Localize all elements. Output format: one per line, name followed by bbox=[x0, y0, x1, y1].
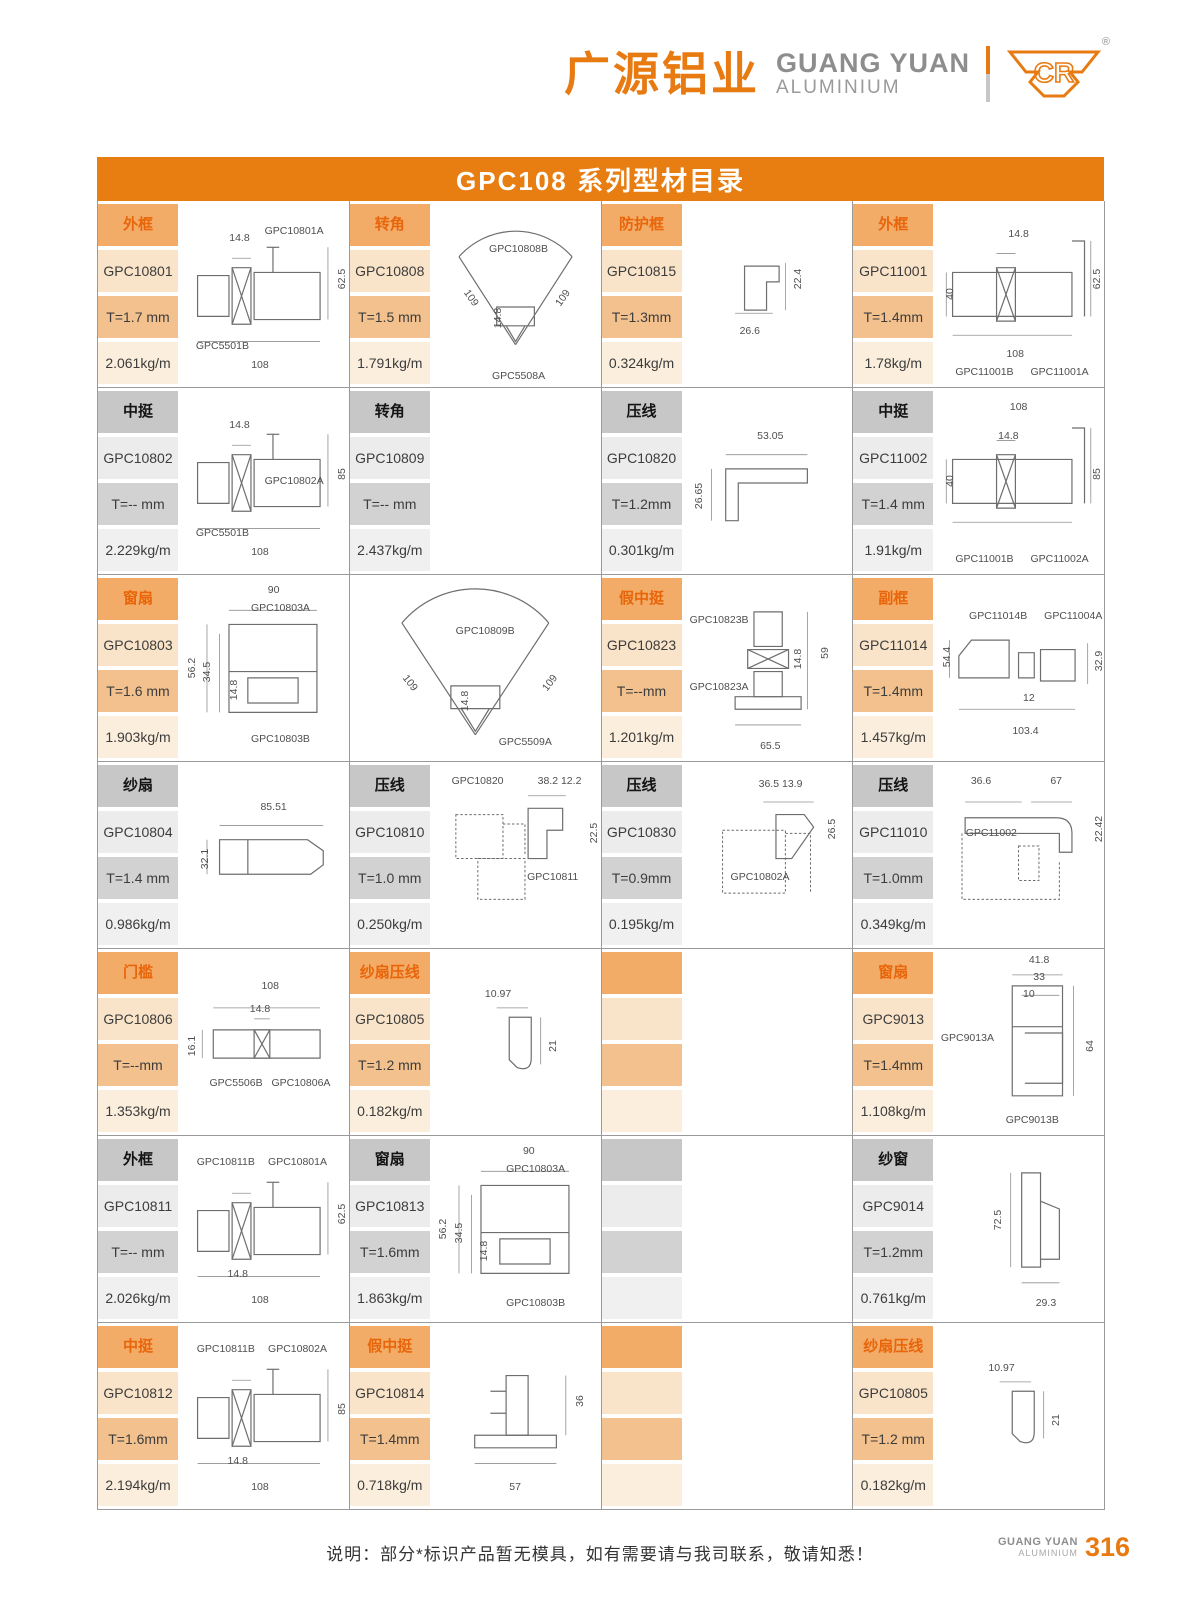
dimension-label: 10 bbox=[1023, 988, 1035, 1000]
label-column: 外框GPC10801T=1.7 mm2.061kg/m bbox=[98, 201, 178, 387]
weight-value: 2.229kg/m bbox=[98, 529, 178, 571]
thickness-value: T=1.2 mm bbox=[350, 1044, 430, 1086]
dimension-label: 38.2 12.2 bbox=[538, 775, 582, 787]
dimension-label: GPC10802A bbox=[731, 871, 790, 883]
registered-mark: ® bbox=[1102, 36, 1110, 48]
logo-chinese-name: 广源铝业 bbox=[564, 51, 760, 97]
label-column: 中挺GPC11002T=1.4 mm1.91kg/m bbox=[853, 388, 933, 574]
profile-drawing: 36.5 13.926.5GPC10802A bbox=[682, 762, 853, 948]
label-column: 转角GPC10808T=1.5 mm1.791kg/m bbox=[350, 201, 430, 387]
thickness-value: T=1.4mm bbox=[853, 296, 933, 338]
thickness-value: T=1.4mm bbox=[350, 1418, 430, 1460]
dimension-label: GPC10802A bbox=[265, 475, 324, 487]
product-code: GPC10815 bbox=[602, 250, 682, 292]
product-code: GPC10813 bbox=[350, 1185, 430, 1227]
category-label: 假中挺 bbox=[350, 1326, 430, 1368]
dimension-label: 14.8 bbox=[459, 691, 471, 711]
profile-drawing: 85.5132.1 bbox=[178, 762, 349, 948]
dimension-label: GPC10823B bbox=[690, 614, 749, 626]
dimension-label: 36 bbox=[574, 1395, 586, 1407]
profile-drawing: 10814.84085GPC11001BGPC11002A bbox=[933, 388, 1104, 574]
category-label: 外框 bbox=[98, 1139, 178, 1181]
weight-value: 1.78kg/m bbox=[853, 342, 933, 384]
product-code: GPC11010 bbox=[853, 811, 933, 853]
dimension-label: 34.5 bbox=[201, 662, 213, 682]
product-code: GPC11001 bbox=[853, 250, 933, 292]
cr-logo-icon: CR ® bbox=[1006, 42, 1102, 106]
label-column bbox=[602, 1136, 682, 1322]
dimension-label: 36.6 bbox=[971, 775, 991, 787]
page-number: 316 bbox=[1085, 1534, 1130, 1561]
category-label: 中挺 bbox=[98, 1326, 178, 1368]
label-column: 窗扇GPC10803T=1.6 mm1.903kg/m bbox=[98, 575, 178, 761]
dimension-label: GPC11001B bbox=[955, 366, 1013, 378]
label-column: 纱扇压线GPC10805T=1.2 mm0.182kg/m bbox=[853, 1323, 933, 1509]
category-label: 纱扇 bbox=[98, 765, 178, 807]
profile-card-GPC10805: 纱扇压线GPC10805T=1.2 mm0.182kg/m10.9721 bbox=[350, 949, 602, 1135]
profile-card-GPC9013: 窗扇GPC9013T=1.4mm1.108kg/m41.83310GPC9013… bbox=[853, 949, 1105, 1135]
dimension-label: 40 bbox=[944, 475, 956, 487]
category-label: 外框 bbox=[98, 204, 178, 246]
profile-card-GPC10806: 门槛GPC10806T=--mm1.353kg/m10814.816.1GPC5… bbox=[98, 949, 350, 1135]
thickness-value: T=0.9mm bbox=[602, 857, 682, 899]
thickness-value: T=--mm bbox=[602, 670, 682, 712]
thickness-value: T=1.2mm bbox=[853, 1231, 933, 1273]
product-code: GPC10805 bbox=[350, 998, 430, 1040]
category-label bbox=[602, 1139, 682, 1181]
product-code: GPC10808 bbox=[350, 250, 430, 292]
label-column: 压线GPC10820T=1.2mm0.301kg/m bbox=[602, 388, 682, 574]
profile-drawing: 53.0526.65 bbox=[682, 388, 853, 574]
weight-value: 1.903kg/m bbox=[98, 716, 178, 758]
dimension-label: 16.1 bbox=[186, 1036, 198, 1056]
dimension-label: 108 bbox=[251, 1294, 269, 1306]
profile-drawing: 10.9721 bbox=[430, 949, 601, 1135]
dimension-label: 90 bbox=[268, 584, 280, 596]
category-label: 防护框 bbox=[602, 204, 682, 246]
dimension-label: GPC5506B bbox=[209, 1077, 262, 1089]
profile-card-GPC11010: 压线GPC11010T=1.0mm0.349kg/m36.667GPC11002… bbox=[853, 762, 1105, 948]
profile-card-GPC11001: 外框GPC11001T=1.4mm1.78kg/m14.84062.5108GP… bbox=[853, 201, 1105, 387]
product-code: GPC11002 bbox=[853, 437, 933, 479]
profile-card-GPC10804: 纱扇GPC10804T=1.4 mm0.986kg/m85.5132.1 bbox=[98, 762, 350, 948]
dimension-label: 108 bbox=[251, 1481, 269, 1493]
dimension-label: 85 bbox=[336, 468, 348, 480]
profile-card-GPC10815: 防护框GPC10815T=1.3mm0.324kg/m22.426.6 bbox=[602, 201, 854, 387]
category-label: 压线 bbox=[602, 391, 682, 433]
dimension-label: GPC10802A bbox=[268, 1343, 327, 1355]
footer-brand-sub: ALUMINIUM bbox=[1018, 1548, 1078, 1559]
dimension-label: GPC11014B bbox=[969, 610, 1027, 622]
dimension-label: 32.1 bbox=[199, 849, 211, 869]
dimension-label: GPC10803B bbox=[506, 1297, 565, 1309]
dimension-label: GPC5501B bbox=[196, 340, 249, 352]
weight-value bbox=[602, 1090, 682, 1132]
dimension-label: 62.5 bbox=[336, 269, 348, 289]
thickness-value: T=-- mm bbox=[350, 483, 430, 525]
dimension-label: GPC11001A bbox=[1031, 366, 1089, 378]
svg-text:CR: CR bbox=[1034, 57, 1074, 88]
dimension-label: 26.6 bbox=[740, 325, 760, 337]
catalog-row: 门槛GPC10806T=--mm1.353kg/m10814.816.1GPC5… bbox=[98, 949, 1105, 1136]
label-column: 中挺GPC10802T=-- mm2.229kg/m bbox=[98, 388, 178, 574]
dimension-label: 14.8 bbox=[478, 1241, 490, 1261]
dimension-label: GPC10806A bbox=[271, 1077, 330, 1089]
thickness-value: T=1.4mm bbox=[853, 1044, 933, 1086]
product-code: GPC9013 bbox=[853, 998, 933, 1040]
profile-card-empty bbox=[602, 1136, 854, 1322]
thickness-value: T=1.0 mm bbox=[350, 857, 430, 899]
category-label: 窗扇 bbox=[350, 1139, 430, 1181]
product-code: GPC10802 bbox=[98, 437, 178, 479]
profile-card-GPC10810: 压线GPC10810T=1.0 mm0.250kg/mGPC1082038.2 … bbox=[350, 762, 602, 948]
dimension-label: GPC9013B bbox=[1006, 1114, 1059, 1126]
product-code bbox=[602, 1185, 682, 1227]
thickness-value bbox=[602, 1231, 682, 1273]
weight-value: 1.863kg/m bbox=[350, 1277, 430, 1319]
profile-card-GPC9014: 纱窗GPC9014T=1.2mm0.761kg/m72.529.3 bbox=[853, 1136, 1105, 1322]
weight-value: 0.718kg/m bbox=[350, 1464, 430, 1506]
weight-value: 1.91kg/m bbox=[853, 529, 933, 571]
weight-value: 0.349kg/m bbox=[853, 903, 933, 945]
dimension-label: 22.42 bbox=[1093, 816, 1105, 842]
dimension-label: 64 bbox=[1084, 1040, 1096, 1052]
profile-drawing: GPC1082038.2 12.2GPC1081122.5 bbox=[430, 762, 601, 948]
thickness-value: T=-- mm bbox=[98, 1231, 178, 1273]
dimension-label: 108 bbox=[251, 359, 269, 371]
dimension-label: 108 bbox=[1006, 348, 1024, 360]
category-label: 纱扇压线 bbox=[853, 1326, 933, 1368]
weight-value: 2.437kg/m bbox=[350, 529, 430, 571]
weight-value: 0.761kg/m bbox=[853, 1277, 933, 1319]
dimension-label: 40 bbox=[944, 288, 956, 300]
product-code: GPC10804 bbox=[98, 811, 178, 853]
dimension-label: GPC10808B bbox=[489, 243, 548, 255]
product-code bbox=[602, 998, 682, 1040]
catalog-row: 中挺GPC10812T=1.6mm2.194kg/mGPC10811BGPC10… bbox=[98, 1323, 1105, 1510]
label-column: 假中挺GPC10823T=--mm1.201kg/m bbox=[602, 575, 682, 761]
logo-english-sub: ALUMINIUM bbox=[776, 77, 970, 99]
dimension-label: 85 bbox=[336, 1403, 348, 1415]
product-code: GPC10812 bbox=[98, 1372, 178, 1414]
profile-card-GPC10820: 压线GPC10820T=1.2mm0.301kg/m53.0526.65 bbox=[602, 388, 854, 574]
dimension-label: 67 bbox=[1050, 775, 1062, 787]
profile-drawing: 22.426.6 bbox=[682, 201, 853, 387]
dimension-label: GPC9013A bbox=[941, 1032, 994, 1044]
thickness-value: T=1.2 mm bbox=[853, 1418, 933, 1460]
dimension-label: 90 bbox=[523, 1145, 535, 1157]
profile-drawing: 41.83310GPC9013A64GPC9013B bbox=[933, 949, 1104, 1135]
label-column: 防护框GPC10815T=1.3mm0.324kg/m bbox=[602, 201, 682, 387]
dimension-label: 14.8 bbox=[229, 232, 249, 244]
profile-card-GPC10813: 窗扇GPC10813T=1.6mm1.863kg/m90GPC10803A56.… bbox=[350, 1136, 602, 1322]
thickness-value: T=1.4 mm bbox=[853, 483, 933, 525]
weight-value: 0.324kg/m bbox=[602, 342, 682, 384]
profile-card-empty bbox=[602, 949, 854, 1135]
product-code: GPC10806 bbox=[98, 998, 178, 1040]
profile-card-GPC10823: 假中挺GPC10823T=--mm1.201kg/mGPC10823B14.85… bbox=[602, 575, 854, 761]
profile-card-GPC10801: 外框GPC10801T=1.7 mm2.061kg/m14.8GPC10801A… bbox=[98, 201, 350, 387]
dimension-label: 85 bbox=[1091, 468, 1103, 480]
category-label: 假中挺 bbox=[602, 578, 682, 620]
weight-value: 1.353kg/m bbox=[98, 1090, 178, 1132]
thickness-value: T=1.3mm bbox=[602, 296, 682, 338]
dimension-label: 72.5 bbox=[992, 1209, 1004, 1229]
profile-card-GPC10811: 外框GPC10811T=-- mm2.026kg/mGPC10811BGPC10… bbox=[98, 1136, 350, 1322]
profile-drawing bbox=[430, 388, 601, 574]
weight-value bbox=[602, 1277, 682, 1319]
profile-card-GPC11002: 中挺GPC11002T=1.4 mm1.91kg/m10814.84085GPC… bbox=[853, 388, 1105, 574]
category-label: 副框 bbox=[853, 578, 933, 620]
category-label: 窗扇 bbox=[98, 578, 178, 620]
label-column: 副框GPC11014T=1.4mm1.457kg/m bbox=[853, 575, 933, 761]
dimension-label: 108 bbox=[251, 546, 269, 558]
dimension-label: 34.5 bbox=[453, 1223, 465, 1243]
dimension-label: GPC10811 bbox=[527, 871, 578, 883]
company-logo: 广源铝业 GUANG YUAN ALUMINIUM CR ® bbox=[564, 42, 1102, 106]
dimension-label: 65.5 bbox=[760, 740, 780, 752]
category-label: 纱扇压线 bbox=[350, 952, 430, 994]
profile-drawing: 10.9721 bbox=[933, 1323, 1104, 1509]
product-code: GPC10810 bbox=[350, 811, 430, 853]
profile-card-GPC10812: 中挺GPC10812T=1.6mm2.194kg/mGPC10811BGPC10… bbox=[98, 1323, 350, 1509]
dimension-label: 57 bbox=[509, 1481, 521, 1493]
label-column bbox=[602, 1323, 682, 1509]
label-column: 压线GPC10830T=0.9mm0.195kg/m bbox=[602, 762, 682, 948]
dimension-label: 14.8 bbox=[228, 680, 240, 700]
dimension-label: GPC10811B bbox=[197, 1343, 255, 1355]
dimension-label: 36.5 13.9 bbox=[759, 778, 803, 790]
category-label: 中挺 bbox=[98, 391, 178, 433]
weight-value: 2.194kg/m bbox=[98, 1464, 178, 1506]
dimension-label: 59 bbox=[819, 647, 831, 659]
logo-english-name: GUANG YUAN bbox=[776, 49, 970, 77]
logo-divider bbox=[986, 46, 990, 102]
dimension-label: 56.2 bbox=[437, 1219, 449, 1239]
dimension-label: 62.5 bbox=[1091, 269, 1103, 289]
dimension-label: 108 bbox=[261, 980, 279, 992]
profile-drawing: GPC11014BGPC11004A54.41232.9103.4 bbox=[933, 575, 1104, 761]
dimension-label: GPC10823A bbox=[690, 681, 749, 693]
weight-value: 1.791kg/m bbox=[350, 342, 430, 384]
dimension-label: 54.4 bbox=[941, 647, 953, 667]
footer-brand: GUANG YUAN ALUMINIUM 316 bbox=[998, 1534, 1130, 1561]
thickness-value: T=-- mm bbox=[98, 483, 178, 525]
dimension-label: GPC5501B bbox=[196, 527, 249, 539]
weight-value: 2.061kg/m bbox=[98, 342, 178, 384]
product-code: GPC10801 bbox=[98, 250, 178, 292]
product-code: GPC10823 bbox=[602, 624, 682, 666]
product-code: GPC10811 bbox=[98, 1185, 178, 1227]
label-column: 压线GPC10810T=1.0 mm0.250kg/m bbox=[350, 762, 430, 948]
profile-card-GPC10802: 中挺GPC10802T=-- mm2.229kg/m14.8GPC10802A8… bbox=[98, 388, 350, 574]
catalog-row: 窗扇GPC10803T=1.6 mm1.903kg/m90GPC10803A56… bbox=[98, 575, 1105, 762]
dimension-label: 21 bbox=[547, 1040, 559, 1052]
product-code: GPC10805 bbox=[853, 1372, 933, 1414]
dimension-label: GPC11002 bbox=[966, 827, 1017, 839]
profile-drawing: 36.667GPC1100222.42 bbox=[933, 762, 1104, 948]
dimension-label: GPC10820 bbox=[452, 775, 504, 787]
label-column: 压线GPC11010T=1.0mm0.349kg/m bbox=[853, 762, 933, 948]
dimension-label: 10.97 bbox=[988, 1362, 1014, 1374]
product-code bbox=[602, 1372, 682, 1414]
profile-drawing bbox=[682, 1136, 853, 1322]
dimension-label: 14.8 bbox=[250, 1003, 270, 1015]
category-label: 窗扇 bbox=[853, 952, 933, 994]
category-label: 外框 bbox=[853, 204, 933, 246]
product-code: GPC11014 bbox=[853, 624, 933, 666]
category-label: 门槛 bbox=[98, 952, 178, 994]
label-column: 纱窗GPC9014T=1.2mm0.761kg/m bbox=[853, 1136, 933, 1322]
category-label: 转角 bbox=[350, 391, 430, 433]
profile-drawing: 14.8GPC10801A62.5GPC5501B108 bbox=[178, 201, 349, 387]
dimension-label: 14.8 bbox=[998, 430, 1018, 442]
category-label bbox=[602, 1326, 682, 1368]
category-label bbox=[602, 952, 682, 994]
weight-value: 0.250kg/m bbox=[350, 903, 430, 945]
catalog-row: 外框GPC10811T=-- mm2.026kg/mGPC10811BGPC10… bbox=[98, 1136, 1105, 1323]
dimension-label: 33 bbox=[1033, 971, 1045, 983]
dimension-label: 103.4 bbox=[1012, 725, 1038, 737]
weight-value: 0.301kg/m bbox=[602, 529, 682, 571]
dimension-label: 14.8 bbox=[1008, 228, 1028, 240]
thickness-value: T=1.2mm bbox=[602, 483, 682, 525]
thickness-value: T=1.5 mm bbox=[350, 296, 430, 338]
dimension-label: 56.2 bbox=[186, 658, 198, 678]
dimension-label: GPC10803A bbox=[251, 602, 310, 614]
dimension-label: GPC5508A bbox=[492, 370, 545, 382]
thickness-value: T=1.6mm bbox=[350, 1231, 430, 1273]
dimension-label: GPC11001B bbox=[955, 553, 1013, 565]
category-label: 转角 bbox=[350, 204, 430, 246]
label-column: 外框GPC11001T=1.4mm1.78kg/m bbox=[853, 201, 933, 387]
profile-card-GPC10803: 窗扇GPC10803T=1.6 mm1.903kg/m90GPC10803A56… bbox=[98, 575, 350, 761]
catalog-grid: 外框GPC10801T=1.7 mm2.061kg/m14.8GPC10801A… bbox=[97, 201, 1105, 1510]
thickness-value: T=--mm bbox=[98, 1044, 178, 1086]
weight-value: 0.182kg/m bbox=[350, 1090, 430, 1132]
category-label: 压线 bbox=[602, 765, 682, 807]
label-column: 纱扇压线GPC10805T=1.2 mm0.182kg/m bbox=[350, 949, 430, 1135]
thickness-value: T=1.4 mm bbox=[98, 857, 178, 899]
dimension-label: GPC10811B bbox=[197, 1156, 255, 1168]
profile-drawing bbox=[682, 1323, 853, 1509]
profile-card-empty: GPC10809B10914.8109GPC5509A bbox=[350, 575, 602, 761]
dimension-label: 108 bbox=[1010, 401, 1028, 413]
dimension-label: 14.8 bbox=[229, 419, 249, 431]
label-column: 窗扇GPC9013T=1.4mm1.108kg/m bbox=[853, 949, 933, 1135]
profile-drawing bbox=[682, 949, 853, 1135]
profile-drawing: 14.84062.5108GPC11001BGPC11001A bbox=[933, 201, 1104, 387]
weight-value: 0.195kg/m bbox=[602, 903, 682, 945]
dimension-label: GPC5509A bbox=[499, 736, 552, 748]
dimension-label: 14.8 bbox=[228, 1268, 248, 1280]
product-code: GPC10809 bbox=[350, 437, 430, 479]
dimension-label: 85.51 bbox=[260, 801, 286, 813]
dimension-label: 22.4 bbox=[792, 269, 804, 289]
label-column: 转角GPC10809T=-- mm2.437kg/m bbox=[350, 388, 430, 574]
profile-card-GPC10808: 转角GPC10808T=1.5 mm1.791kg/mGPC10808B1091… bbox=[350, 201, 602, 387]
profile-drawing: GPC10809B10914.8109GPC5509A bbox=[350, 575, 601, 761]
profile-drawing: 14.8GPC10802A85GPC5501B108 bbox=[178, 388, 349, 574]
weight-value: 0.986kg/m bbox=[98, 903, 178, 945]
product-code: GPC9014 bbox=[853, 1185, 933, 1227]
profile-card-empty bbox=[602, 1323, 854, 1509]
dimension-label: 26.65 bbox=[693, 483, 705, 509]
thickness-value: T=1.6 mm bbox=[98, 670, 178, 712]
label-column: 中挺GPC10812T=1.6mm2.194kg/m bbox=[98, 1323, 178, 1509]
dimension-label: 62.5 bbox=[336, 1204, 348, 1224]
category-label: 中挺 bbox=[853, 391, 933, 433]
profile-drawing: 72.529.3 bbox=[933, 1136, 1104, 1322]
dimension-label: 14.8 bbox=[792, 648, 804, 668]
profile-drawing: GPC10823B14.859GPC10823A65.5 bbox=[682, 575, 853, 761]
profile-drawing: GPC10811BGPC10801A62.514.8108 bbox=[178, 1136, 349, 1322]
dimension-label: 10.97 bbox=[485, 988, 511, 1000]
thickness-value: T=1.6mm bbox=[98, 1418, 178, 1460]
dimension-label: 26.5 bbox=[826, 819, 838, 839]
profile-drawing: GPC10811BGPC10802A8514.8108 bbox=[178, 1323, 349, 1509]
weight-value: 0.182kg/m bbox=[853, 1464, 933, 1506]
product-code: GPC10803 bbox=[98, 624, 178, 666]
category-label: 压线 bbox=[350, 765, 430, 807]
profile-drawing: 90GPC10803A56.234.514.8GPC10803B bbox=[178, 575, 349, 761]
label-column bbox=[602, 949, 682, 1135]
weight-value: 1.201kg/m bbox=[602, 716, 682, 758]
dimension-label: 29.3 bbox=[1036, 1297, 1056, 1309]
dimension-label: 53.05 bbox=[757, 430, 783, 442]
profile-card-GPC11014: 副框GPC11014T=1.4mm1.457kg/mGPC11014BGPC11… bbox=[853, 575, 1105, 761]
weight-value: 2.026kg/m bbox=[98, 1277, 178, 1319]
dimension-label: 41.8 bbox=[1029, 954, 1049, 966]
dimension-label: 12 bbox=[1023, 692, 1035, 704]
catalog-row: 中挺GPC10802T=-- mm2.229kg/m14.8GPC10802A8… bbox=[98, 388, 1105, 575]
product-code: GPC10830 bbox=[602, 811, 682, 853]
profile-drawing: 10814.816.1GPC5506BGPC10806A bbox=[178, 949, 349, 1135]
weight-value: 1.108kg/m bbox=[853, 1090, 933, 1132]
profile-card-GPC10830: 压线GPC10830T=0.9mm0.195kg/m36.5 13.926.5G… bbox=[602, 762, 854, 948]
profile-card-GPC10814: 假中挺GPC10814T=1.4mm0.718kg/m3657 bbox=[350, 1323, 602, 1509]
label-column: 外框GPC10811T=-- mm2.026kg/m bbox=[98, 1136, 178, 1322]
profile-drawing: GPC10808B10914.8109GPC5508A bbox=[430, 201, 601, 387]
dimension-label: 14.8 bbox=[492, 308, 504, 328]
thickness-value bbox=[602, 1044, 682, 1086]
weight-value bbox=[602, 1464, 682, 1506]
dimension-label: GPC11002A bbox=[1031, 553, 1089, 565]
dimension-label: GPC10803A bbox=[506, 1163, 565, 1175]
category-label: 压线 bbox=[853, 765, 933, 807]
thickness-value: T=1.0mm bbox=[853, 857, 933, 899]
dimension-label: 21 bbox=[1050, 1414, 1062, 1426]
dimension-label: 14.8 bbox=[228, 1455, 248, 1467]
footer-note: 说明：部分*标识产品暂无模具，如有需要请与我司联系，敬请知悉！ bbox=[120, 1540, 1080, 1565]
profile-card-GPC10805: 纱扇压线GPC10805T=1.2 mm0.182kg/m10.9721 bbox=[853, 1323, 1105, 1509]
dimension-label: 22.5 bbox=[588, 822, 600, 842]
dimension-label: GPC10809B bbox=[456, 625, 515, 637]
catalog-row: 纱扇GPC10804T=1.4 mm0.986kg/m85.5132.1压线GP… bbox=[98, 762, 1105, 949]
dimension-label: GPC10801A bbox=[268, 1156, 327, 1168]
label-column: 门槛GPC10806T=--mm1.353kg/m bbox=[98, 949, 178, 1135]
profile-card-GPC10809: 转角GPC10809T=-- mm2.437kg/m bbox=[350, 388, 602, 574]
page-title: GPC108 系列型材目录 bbox=[97, 157, 1104, 201]
product-code: GPC10814 bbox=[350, 1372, 430, 1414]
footer-brand-name: GUANG YUAN bbox=[998, 1536, 1078, 1548]
catalog-row: 外框GPC10801T=1.7 mm2.061kg/m14.8GPC10801A… bbox=[98, 201, 1105, 388]
dimension-label: GPC10801A bbox=[265, 225, 324, 237]
dimension-label: 32.9 bbox=[1093, 650, 1105, 670]
profile-drawing: 90GPC10803A56.234.514.8GPC10803B bbox=[430, 1136, 601, 1322]
profile-drawing: 3657 bbox=[430, 1323, 601, 1509]
label-column: 假中挺GPC10814T=1.4mm0.718kg/m bbox=[350, 1323, 430, 1509]
